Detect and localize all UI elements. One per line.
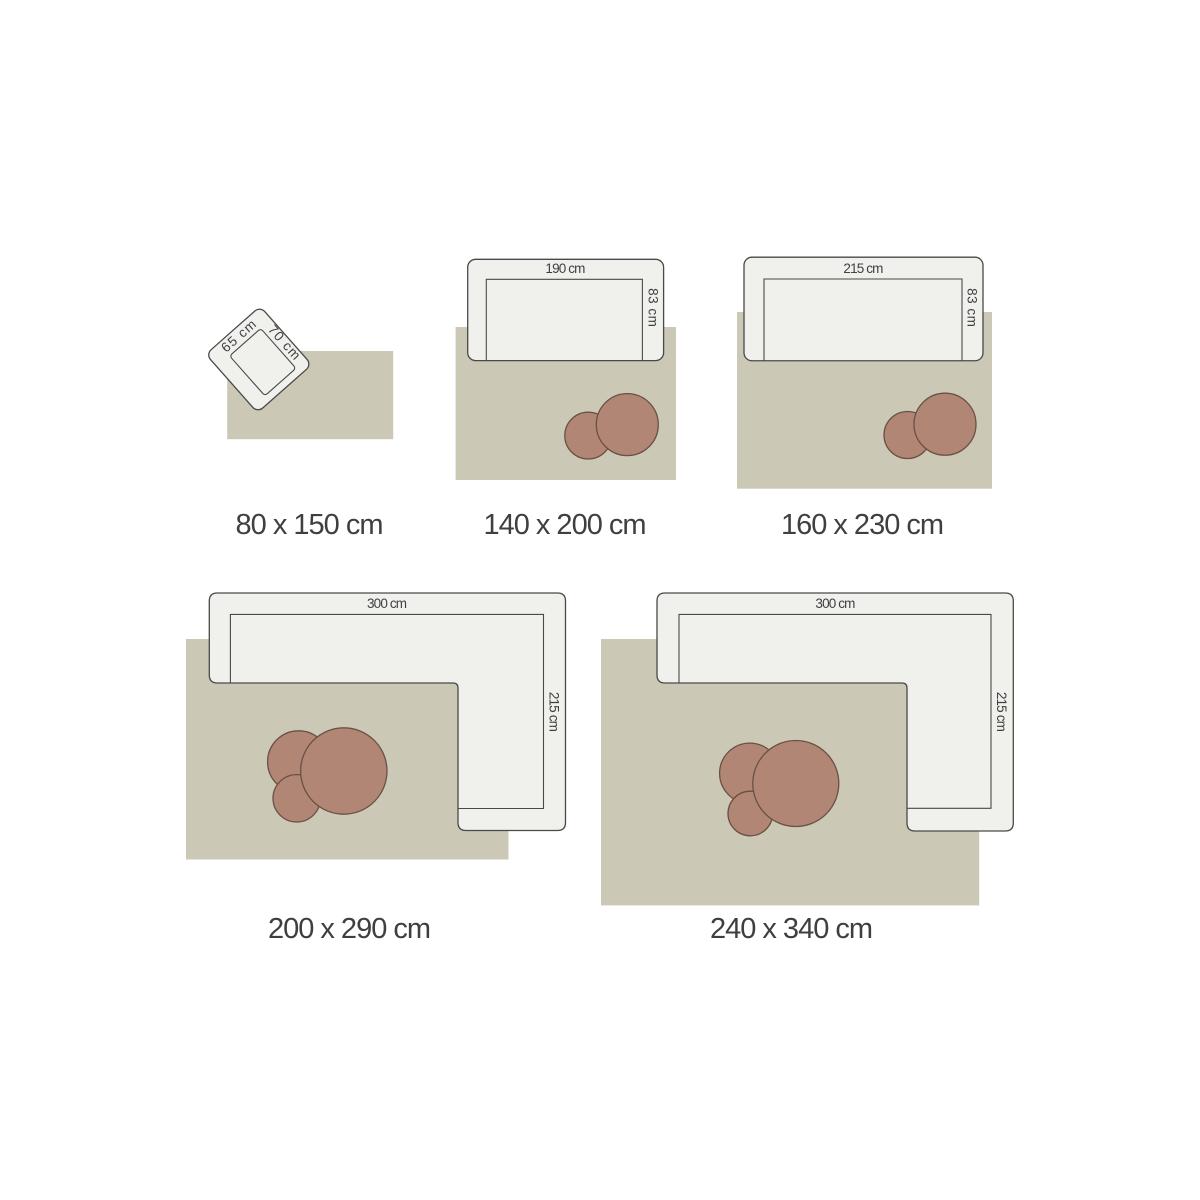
svg-text:160 x 230 cm: 160 x 230 cm [781, 509, 943, 541]
svg-text:83 cm: 83 cm [965, 288, 980, 327]
svg-text:300 cm: 300 cm [367, 596, 407, 611]
svg-text:215 cm: 215 cm [547, 692, 562, 732]
svg-text:200 x 290 cm: 200 x 290 cm [268, 913, 430, 945]
svg-text:300 cm: 300 cm [815, 596, 855, 611]
svg-text:83 cm: 83 cm [645, 288, 660, 327]
svg-text:140 x 200 cm: 140 x 200 cm [483, 509, 645, 541]
svg-text:190 cm: 190 cm [545, 261, 585, 276]
svg-text:80 x 150 cm: 80 x 150 cm [236, 509, 383, 541]
svg-text:215 cm: 215 cm [843, 261, 883, 276]
svg-text:215 cm: 215 cm [994, 692, 1009, 732]
svg-text:240 x 340 cm: 240 x 340 cm [710, 913, 872, 945]
